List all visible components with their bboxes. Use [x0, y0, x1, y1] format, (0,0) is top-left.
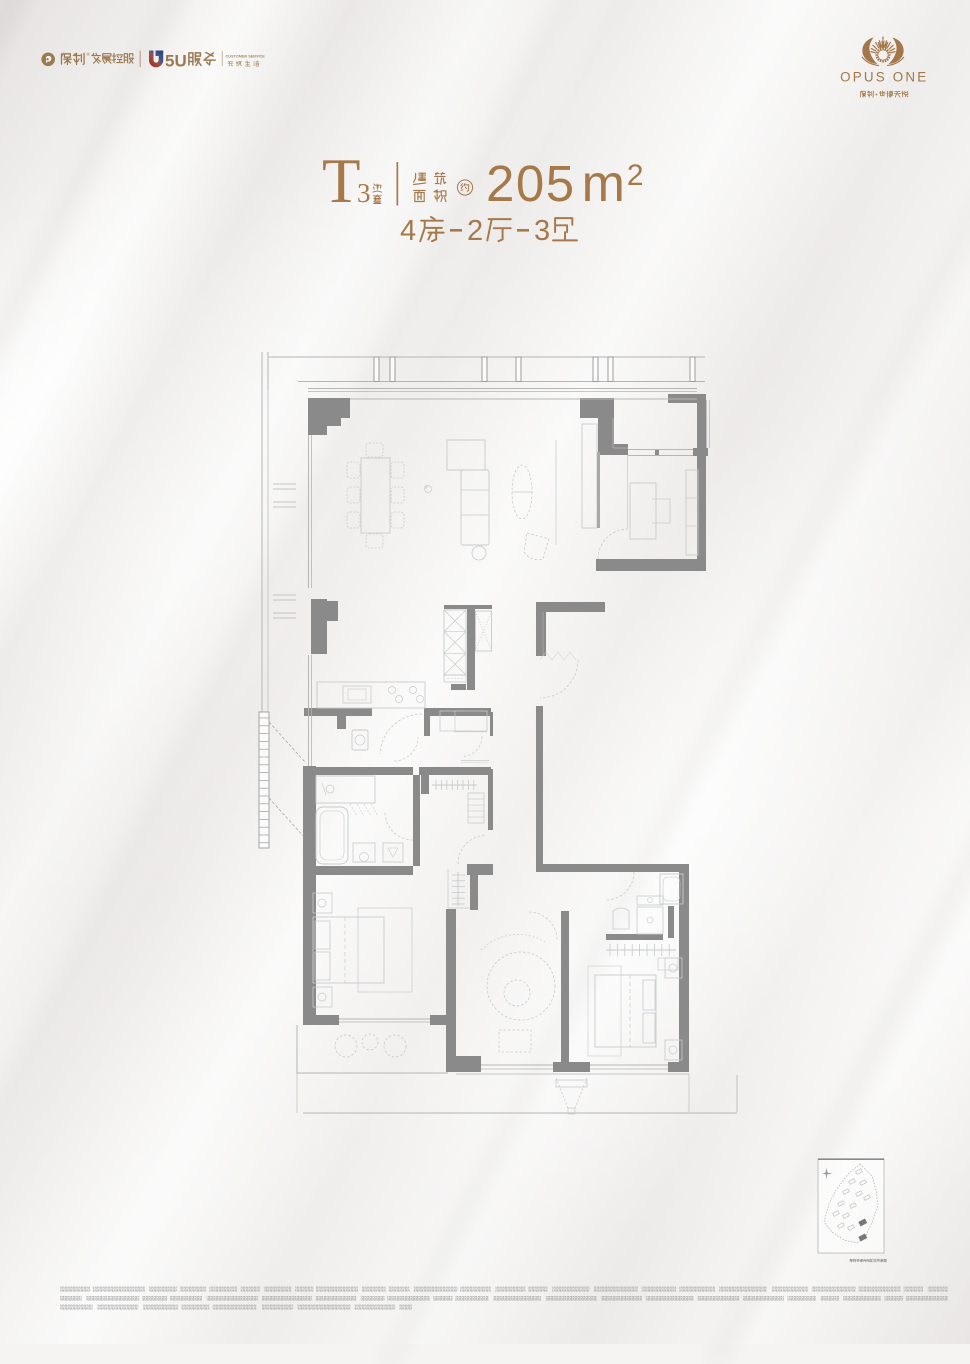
svg-text:OPUS ONE: OPUS ONE — [840, 70, 928, 85]
svg-text:3: 3 — [534, 215, 550, 247]
svg-text:5U: 5U — [165, 52, 187, 71]
svg-text:®: ® — [87, 51, 91, 57]
svg-text:CUSTOMER SERVICE: CUSTOMER SERVICE — [226, 55, 266, 59]
svg-text:2: 2 — [467, 215, 483, 247]
svg-text:4: 4 — [400, 215, 416, 247]
